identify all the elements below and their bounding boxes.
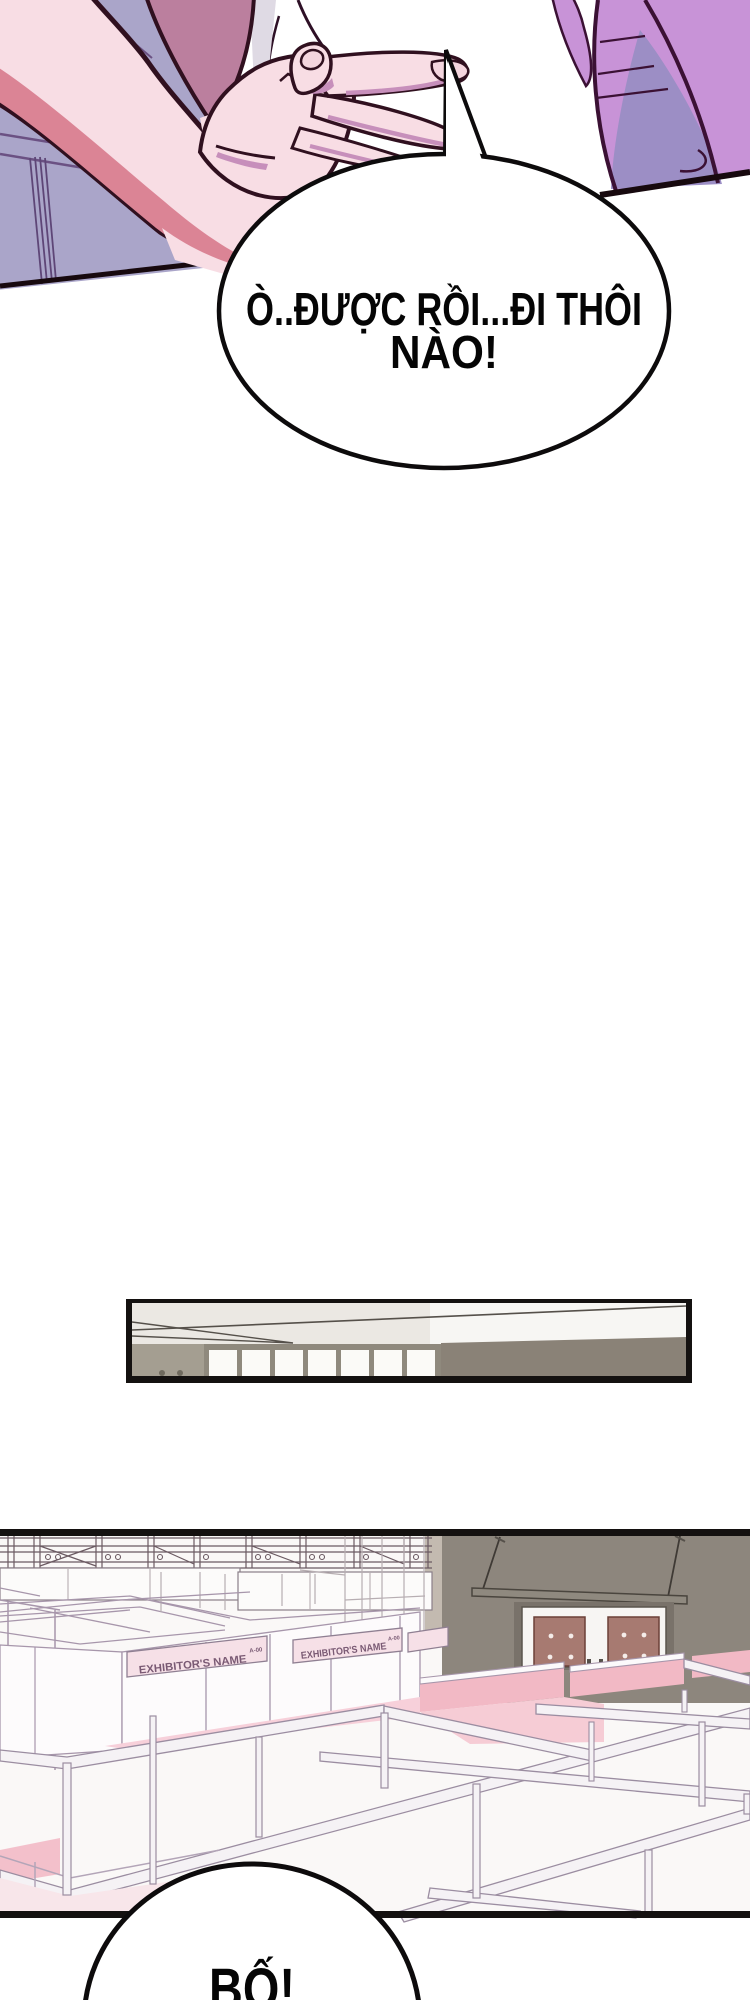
svg-text:BỐ!: BỐ! xyxy=(209,1957,295,2000)
svg-text:NÀO!: NÀO! xyxy=(390,326,498,378)
